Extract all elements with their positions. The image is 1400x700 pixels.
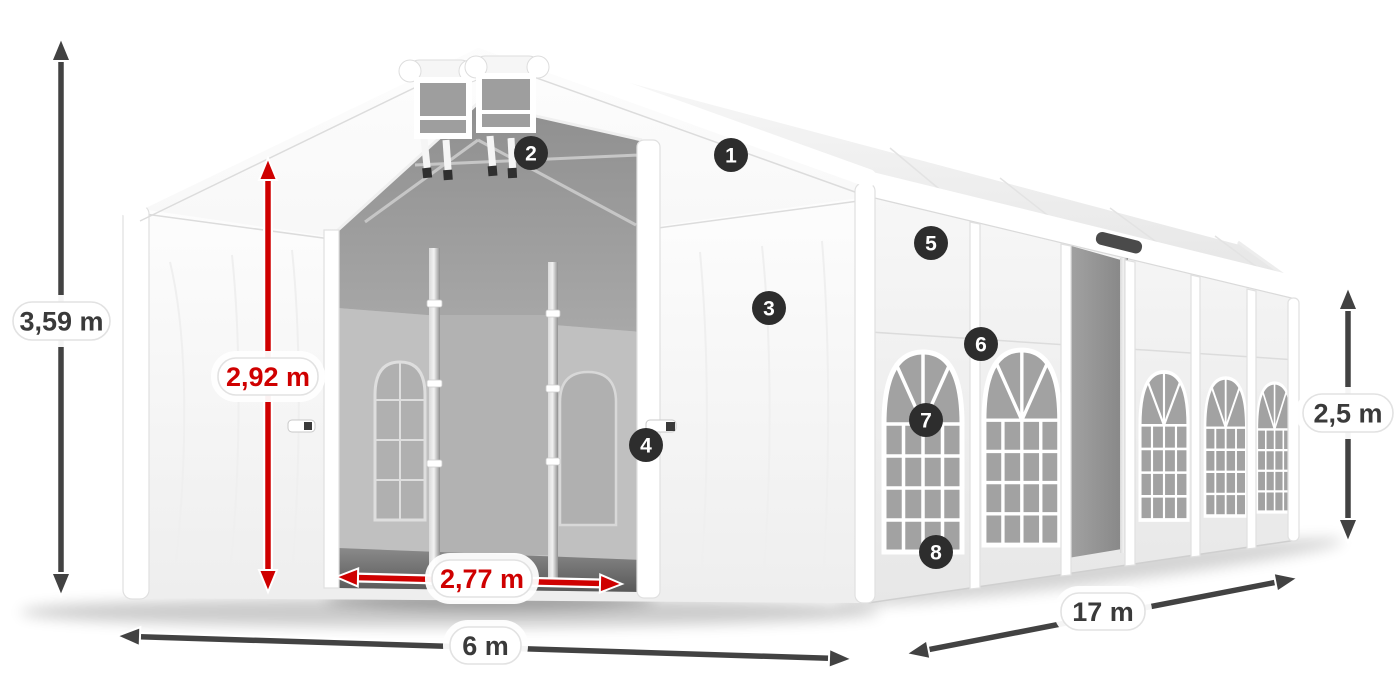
callout-number: 8 (930, 542, 942, 565)
dim-text-entrance-width: 2,77 m (440, 564, 524, 594)
side-window (1257, 383, 1292, 512)
side-window (1205, 378, 1246, 516)
interior-window (560, 372, 616, 525)
dim-side-height: 2,5 m (1300, 287, 1396, 542)
callout-badge-5[interactable]: 5 (914, 226, 948, 260)
callout-badge-3[interactable]: 3 (752, 291, 786, 325)
callout-number: 3 (763, 298, 775, 321)
dim-text-width: 6 m (462, 631, 509, 661)
dim-width: 6 m (117, 624, 853, 668)
callout-badge-2[interactable]: 2 (514, 136, 548, 170)
callout-badge-4[interactable]: 4 (629, 428, 663, 462)
front-left-door-panel (123, 205, 339, 599)
dim-total-height: 3,59 m (10, 38, 113, 596)
callout-number: 6 (975, 334, 987, 357)
callout-badge-1[interactable]: 1 (714, 138, 748, 172)
callout-badge-6[interactable]: 6 (964, 327, 998, 361)
dim-text-entrance-height: 2,92 m (226, 362, 310, 392)
side-window (884, 352, 962, 552)
diagram-canvas: 3,59 m 2,92 m 2,77 m (0, 0, 1400, 700)
front-right-corner-post (855, 183, 875, 603)
entrance-right-jamb (637, 140, 660, 598)
callout-number: 7 (920, 410, 932, 433)
dim-text-total-height: 3,59 m (19, 307, 103, 337)
callout-badge-8[interactable]: 8 (919, 535, 953, 569)
callout-number: 1 (725, 145, 737, 168)
dim-text-length: 17 m (1072, 597, 1134, 627)
left-door-edge (324, 230, 339, 588)
tent-dimension-diagram: 3,59 m 2,92 m 2,77 m (0, 0, 1400, 700)
callout-number: 4 (640, 435, 652, 458)
front-left-corner-post (123, 205, 149, 599)
callout-badge-7[interactable]: 7 (909, 403, 943, 437)
dim-text-side-height: 2,5 m (1313, 399, 1382, 429)
side-window (984, 350, 1060, 545)
interior-back-panel (433, 315, 552, 555)
callout-number: 5 (925, 233, 937, 256)
side-window (1140, 372, 1188, 520)
left-door-handle[interactable] (288, 420, 315, 432)
tent-illustration (123, 38, 1299, 603)
callout-number: 2 (525, 143, 537, 166)
